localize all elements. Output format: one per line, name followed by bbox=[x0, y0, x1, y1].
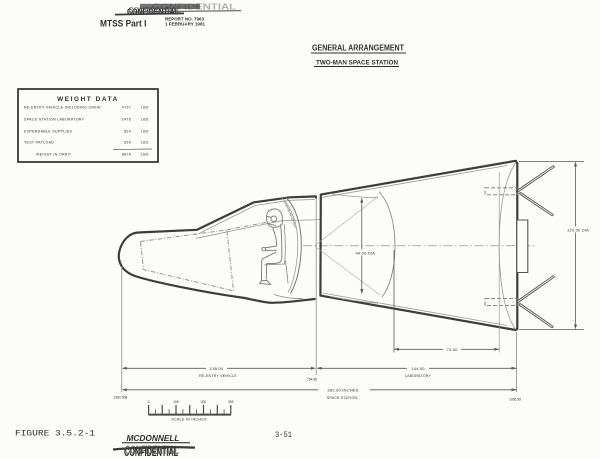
svg-text:282.00 INCHES: 282.00 INCHES bbox=[327, 387, 358, 392]
svg-text:754.68: 754.68 bbox=[307, 378, 317, 382]
svg-text:LBS: LBS bbox=[141, 118, 149, 122]
svg-text:SPACE STATION LABORATORY: SPACE STATION LABORATORY bbox=[24, 118, 85, 122]
svg-text:138.00: 138.00 bbox=[210, 366, 224, 371]
svg-text:2476: 2476 bbox=[122, 118, 131, 122]
svg-text:LBS: LBS bbox=[141, 130, 149, 134]
svg-text:GENERAL ARRANGEMENT: GENERAL ARRANGEMENT bbox=[312, 44, 404, 53]
svg-text:4737: 4737 bbox=[122, 106, 131, 110]
svg-text:839: 839 bbox=[124, 141, 131, 145]
svg-text:CONFIDENTIAL: CONFIDENTIAL bbox=[125, 443, 179, 457]
svg-text:LBS: LBS bbox=[141, 153, 149, 157]
svg-text:FIGURE 3.5.2-1: FIGURE 3.5.2-1 bbox=[15, 429, 95, 439]
svg-text:1 FEBRUARY 1961: 1 FEBRUARY 1961 bbox=[165, 22, 205, 27]
svg-text:RE-ENTRY VEHICLE INCLUDING CRE: RE-ENTRY VEHICLE INCLUDING CREW bbox=[24, 106, 101, 110]
svg-text:1036.58: 1036.58 bbox=[509, 398, 521, 402]
svg-text:SCALE IN INCHES: SCALE IN INCHES bbox=[171, 418, 207, 422]
svg-text:300: 300 bbox=[228, 400, 234, 404]
svg-text:824: 824 bbox=[124, 130, 131, 134]
svg-text:74.00: 74.00 bbox=[446, 347, 458, 352]
svg-text:EXPENDABLE SUPPLIES: EXPENDABLE SUPPLIES bbox=[24, 130, 73, 134]
svg-text:144.00: 144.00 bbox=[411, 366, 425, 371]
svg-text:0: 0 bbox=[148, 400, 150, 404]
svg-text:3-51: 3-51 bbox=[275, 430, 292, 440]
svg-text:TWO-MAN SPACE STATION: TWO-MAN SPACE STATION bbox=[316, 60, 398, 67]
svg-text:MTSS Part I: MTSS Part I bbox=[100, 19, 147, 30]
svg-text:100: 100 bbox=[173, 400, 179, 404]
svg-text:LABORATORY: LABORATORY bbox=[405, 374, 432, 378]
svg-text:MCDONNELL: MCDONNELL bbox=[127, 434, 180, 443]
svg-text:RE-ENTRY VEHICLE: RE-ENTRY VEHICLE bbox=[199, 374, 237, 378]
svg-text:TEST PAYLOAD: TEST PAYLOAD bbox=[24, 141, 54, 145]
svg-text:SPACE STATION: SPACE STATION bbox=[327, 396, 358, 400]
svg-text:120.00 DIA: 120.00 DIA bbox=[567, 228, 589, 233]
svg-text:8876: 8876 bbox=[122, 153, 131, 157]
svg-text:WEIGHT DATA: WEIGHT DATA bbox=[57, 96, 119, 103]
svg-text:1282.508: 1282.508 bbox=[114, 396, 128, 400]
svg-text:200: 200 bbox=[201, 400, 207, 404]
svg-text:49.00 DIA: 49.00 DIA bbox=[356, 251, 376, 256]
svg-text:LBS: LBS bbox=[141, 141, 149, 145]
svg-text:LBS: LBS bbox=[141, 106, 149, 110]
svg-text:WEIGHT IN ORBIT: WEIGHT IN ORBIT bbox=[36, 153, 72, 157]
